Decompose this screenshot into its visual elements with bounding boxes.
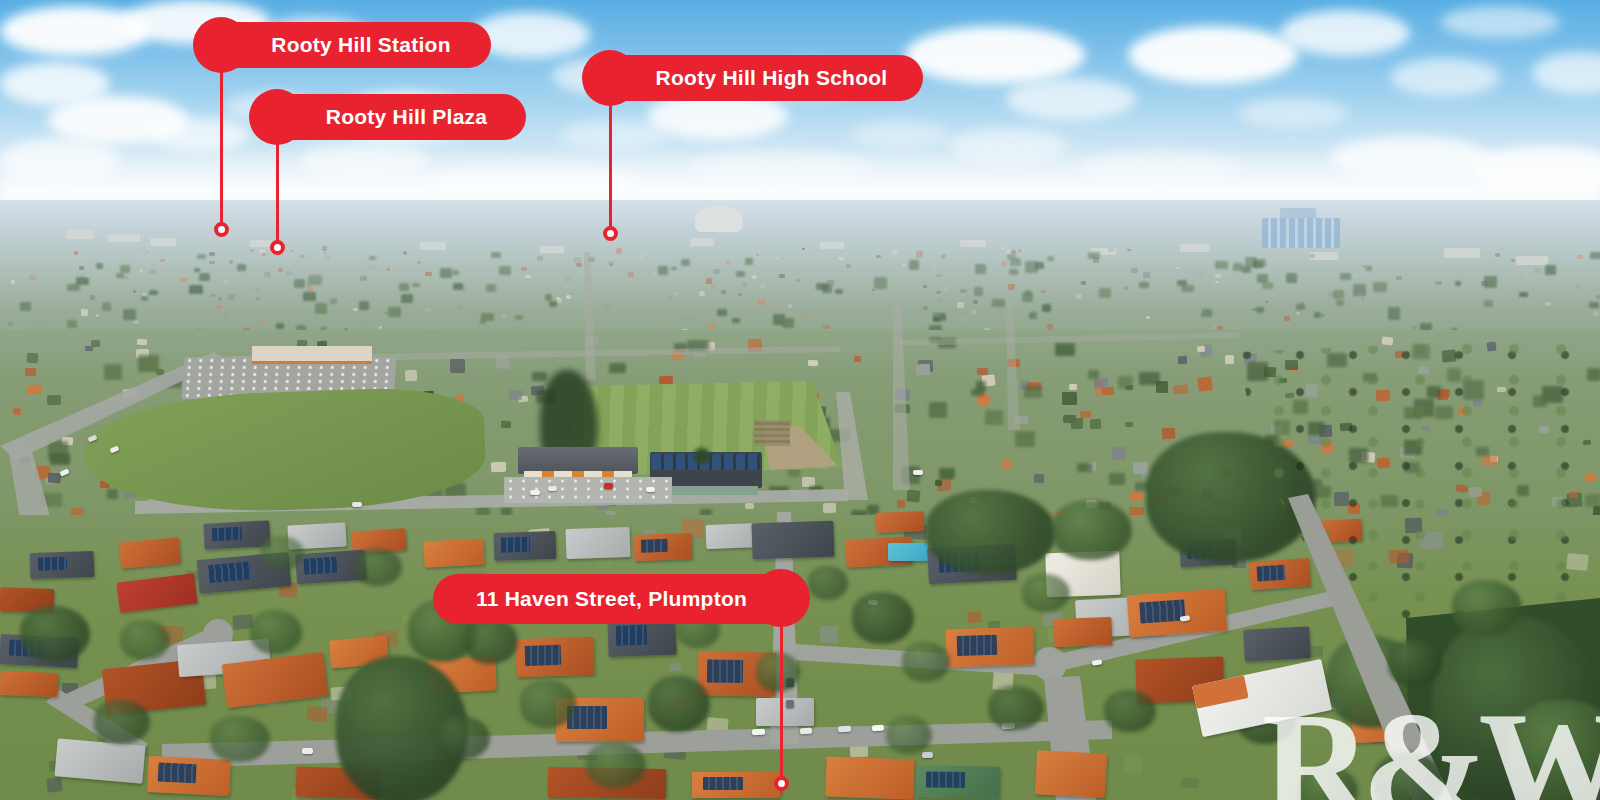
label-knob [752,569,810,627]
target-dot [214,222,229,237]
tree [1452,580,1522,636]
agency-watermark: R&W [1262,690,1600,800]
label-bubble: Rooty Hill Station [205,22,491,68]
aerial-photo: R&W Rooty Hill Station Rooty Hill Plaza … [0,0,1600,800]
label-text: Rooty Hill Station [271,33,451,57]
label-bubble: 11 Haven Street, Plumpton [433,574,790,624]
tree [1388,640,1442,686]
target-dot [603,226,618,241]
overhanging-trees [0,0,1600,800]
label-bubble: Rooty Hill Plaza [261,94,526,140]
target-dot [774,776,789,791]
target-dot [270,240,285,255]
label-text: 11 Haven Street, Plumpton [476,587,747,611]
label-text: Rooty Hill Plaza [326,105,488,129]
leader-line [220,68,223,225]
label-text: Rooty Hill High School [656,66,888,90]
leader-line [780,623,783,778]
leader-line [276,140,279,243]
leader-line [609,101,612,229]
label-bubble: Rooty Hill High School [594,55,923,101]
